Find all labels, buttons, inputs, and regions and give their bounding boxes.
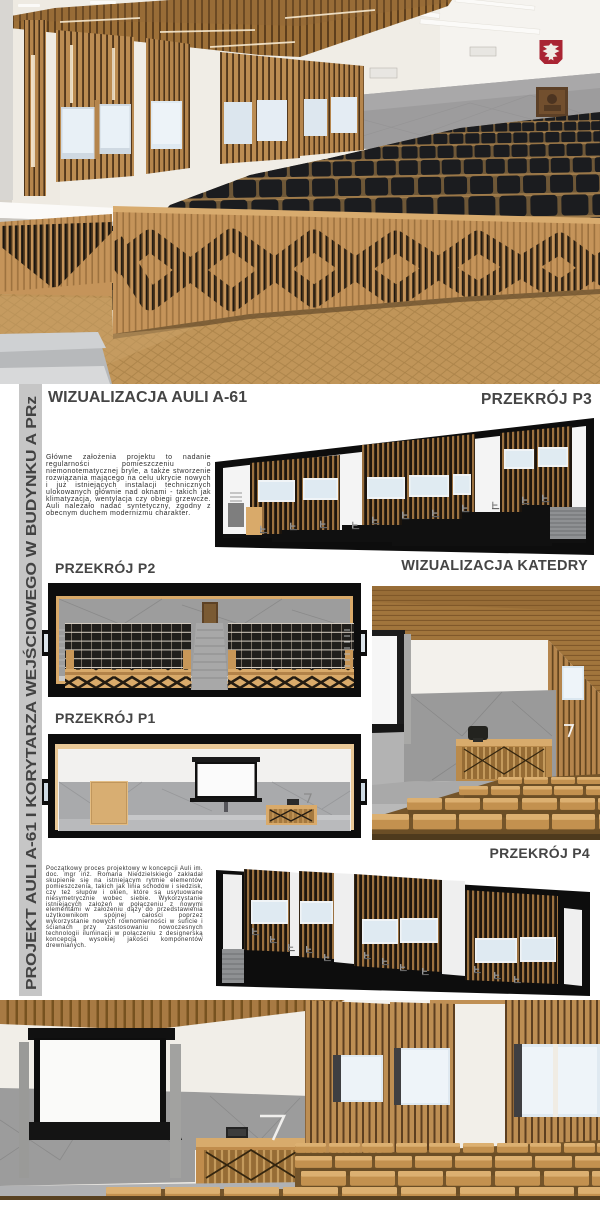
svg-text:PROJEKT AULI A-61 I KORYTARZA: PROJEKT AULI A-61 I KORYTARZA WEJŚCIOWEG…: [22, 396, 40, 990]
